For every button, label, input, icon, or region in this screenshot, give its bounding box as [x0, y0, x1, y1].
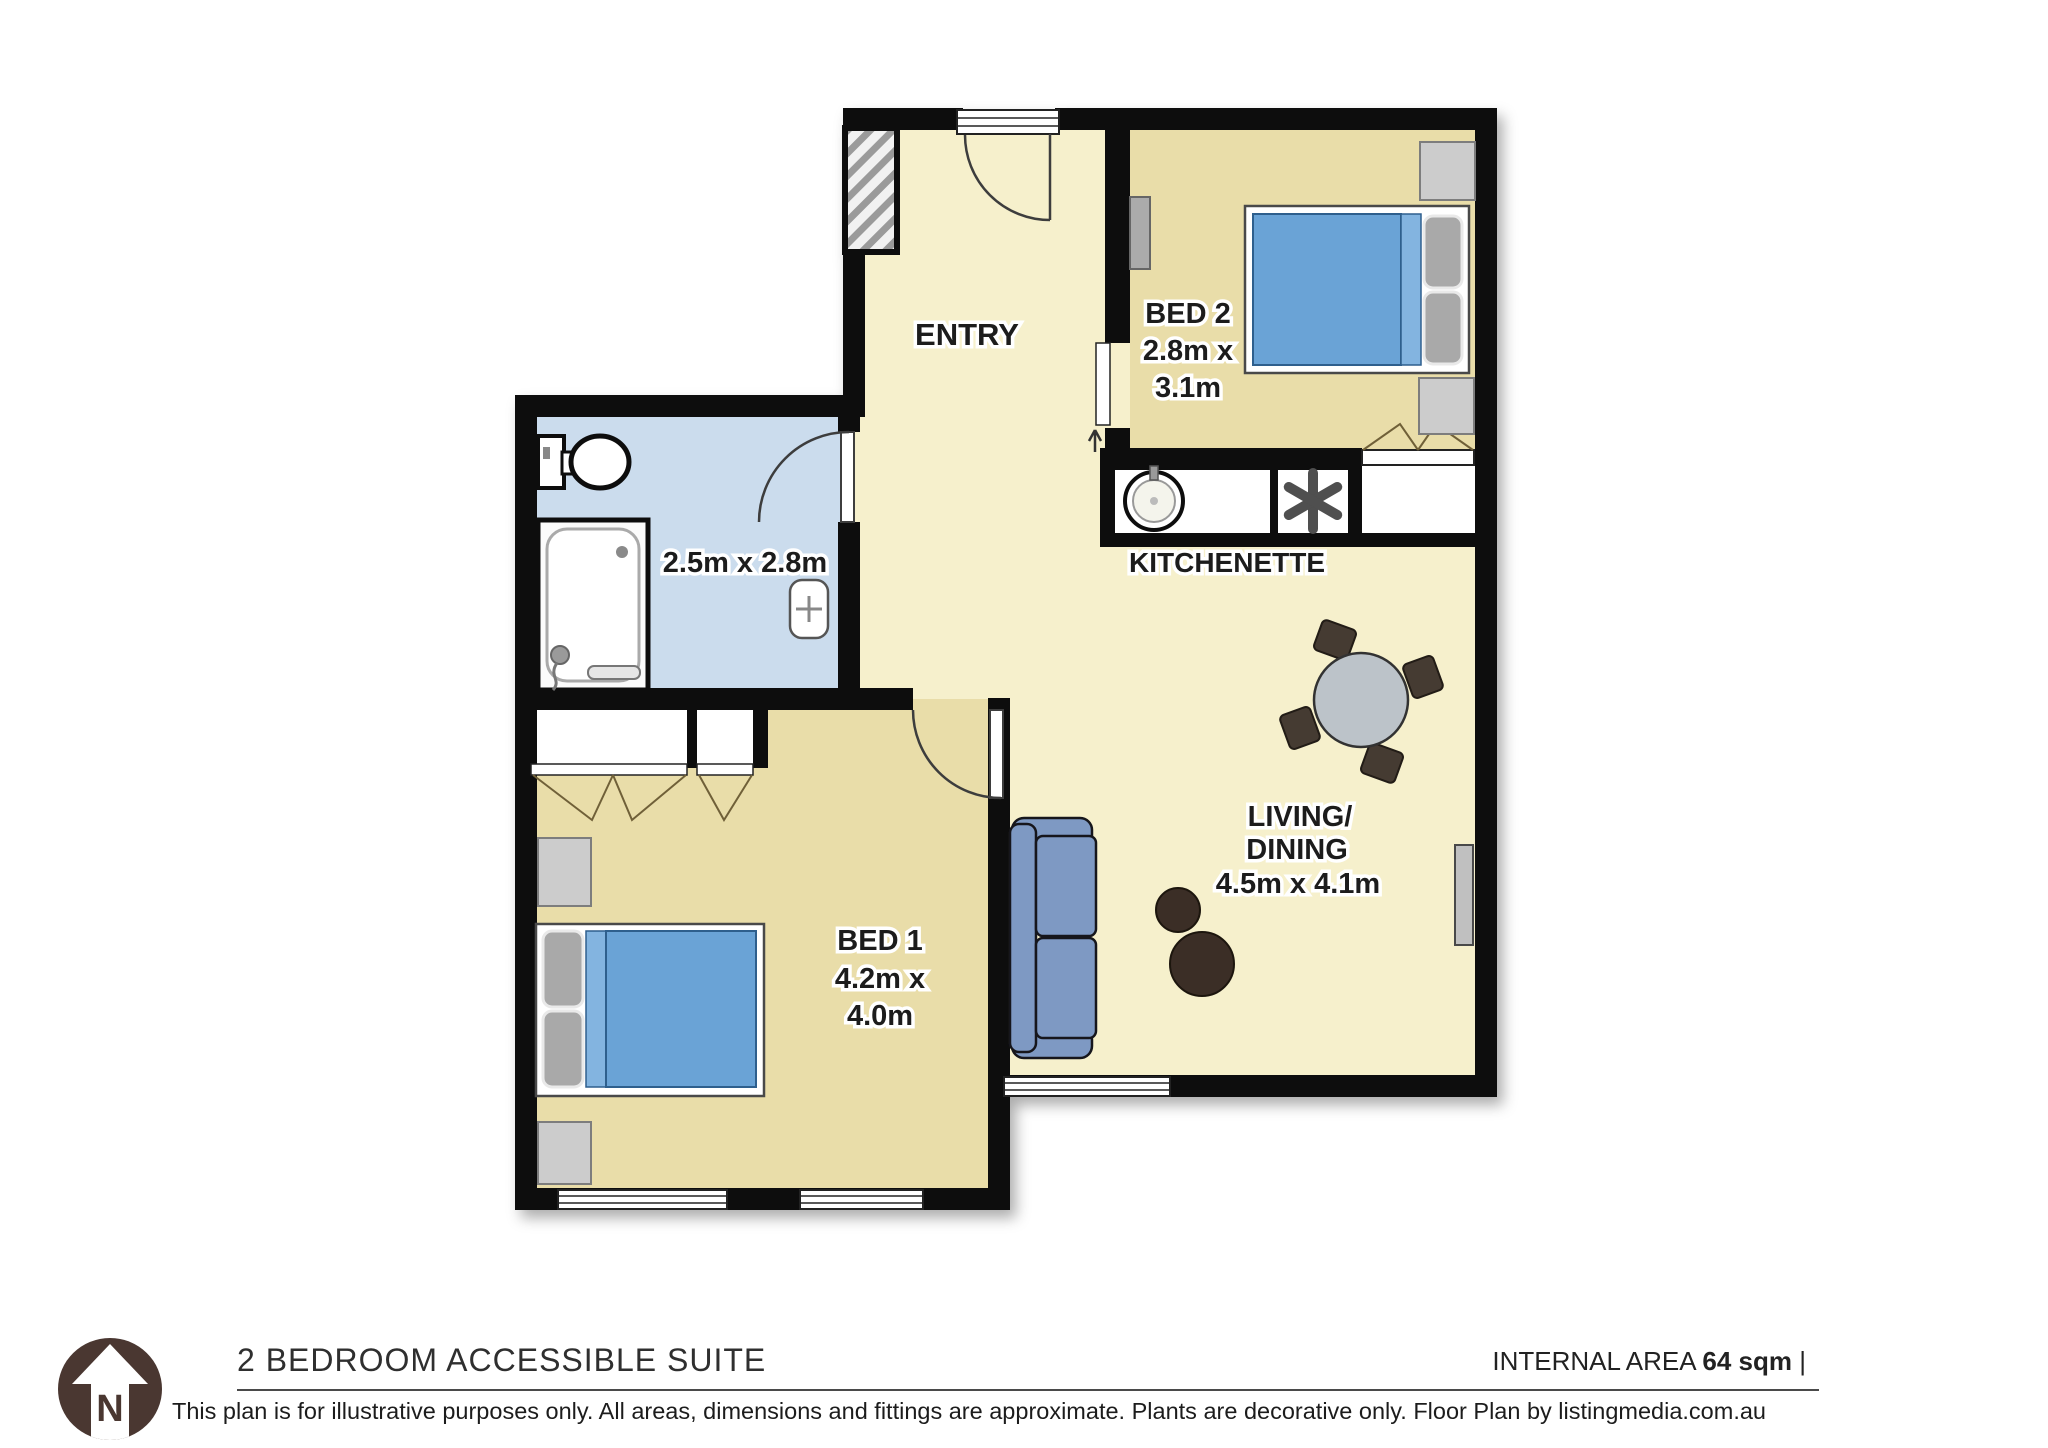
plant-icon: [1170, 932, 1234, 996]
bed2-closet-sill: [1362, 450, 1474, 465]
bed1-bed: [536, 924, 764, 1096]
wardrobe-panel: [1130, 197, 1150, 269]
plan-title: 2 BEDROOM ACCESSIBLE SUITE: [237, 1342, 766, 1379]
wall-segment: [1100, 533, 1497, 547]
living-dims: 4.5m x 4.1m: [1216, 868, 1380, 900]
nightstand: [538, 1122, 591, 1184]
kitchenette-label: KITCHENETTE: [1129, 547, 1325, 578]
bed1-closet-sill-left: [531, 764, 687, 775]
north-compass-logo: N: [58, 1338, 162, 1440]
wall-segment: [1348, 465, 1362, 533]
bed2-sliding-door-panel: [1096, 343, 1110, 425]
wall-segment: [838, 417, 860, 432]
wall-segment: [1100, 448, 1115, 547]
bed1-closet-sill-right: [697, 764, 753, 775]
bed1-dim1: 4.2m x: [835, 963, 925, 995]
nightstand: [1420, 142, 1475, 200]
plant-icon: [1156, 888, 1200, 932]
dining-table: [1314, 653, 1408, 747]
nightstand: [1419, 378, 1474, 434]
floor-plan-drawing: ENTRY BED 2 2.8m x 3.1m KITCHENETTE 2.5m…: [0, 0, 2048, 1320]
bed2-dim1: 2.8m x: [1143, 335, 1233, 367]
bathroom-dims: 2.5m x 2.8m: [663, 547, 827, 579]
bed1-window-right: [800, 1190, 923, 1209]
bed1-window-left: [558, 1190, 727, 1209]
wall-segment: [1270, 465, 1278, 533]
tv-icon: [1455, 845, 1473, 945]
bed1-label: BED 1: [837, 925, 922, 957]
nightstand: [538, 838, 591, 906]
internal-area-value: 64 sqm: [1702, 1346, 1792, 1376]
living-label-2: DINING: [1246, 834, 1348, 866]
bed2-bed: [1245, 206, 1469, 373]
wall-segment: [1100, 448, 1362, 470]
internal-area-label: INTERNAL AREA: [1492, 1346, 1695, 1376]
entry-door-sill: [957, 110, 1059, 134]
pillow: [1424, 216, 1462, 288]
plan-body: ENTRY BED 2 2.8m x 3.1m KITCHENETTE 2.5m…: [515, 108, 1497, 1210]
living-window: [1004, 1077, 1170, 1096]
wall-segment: [515, 395, 537, 1210]
floor-plan-page: ENTRY BED 2 2.8m x 3.1m KITCHENETTE 2.5m…: [0, 0, 2048, 1448]
pillow: [1424, 292, 1462, 364]
wall-segment: [1105, 428, 1130, 448]
north-arrow-icon: [72, 1344, 148, 1384]
bed2-label: BED 2: [1145, 298, 1230, 330]
floor-closet-left: [531, 702, 687, 766]
wall-segment: [687, 698, 697, 768]
north-letter: N: [91, 1382, 129, 1440]
wall-segment: [838, 522, 860, 710]
disclaimer-text: This plan is for illustrative purposes o…: [172, 1398, 1766, 1425]
toilet-icon: [538, 436, 629, 488]
living-label-1: LIVING/: [1248, 801, 1353, 833]
internal-area-separator: |: [1799, 1346, 1806, 1376]
pillow: [543, 931, 583, 1007]
wall-segment: [1105, 108, 1130, 343]
wall-segment: [1475, 108, 1497, 1097]
wall-segment: [515, 395, 865, 417]
floor-closet-right: [697, 702, 753, 766]
sofa: [1010, 818, 1096, 1058]
bed2-dim2: 3.1m: [1155, 372, 1221, 404]
basin-icon: [790, 580, 828, 638]
internal-area: INTERNAL AREA 64 sqm |: [1492, 1346, 1806, 1377]
riser-hatch-panel: [845, 128, 897, 252]
pillow: [543, 1011, 583, 1087]
bed1-dim2: 4.0m: [847, 1000, 913, 1032]
entry-label: ENTRY: [915, 317, 1019, 352]
wall-segment: [753, 698, 768, 768]
bathtub-icon: [538, 520, 648, 690]
footer-divider: [237, 1389, 1819, 1391]
